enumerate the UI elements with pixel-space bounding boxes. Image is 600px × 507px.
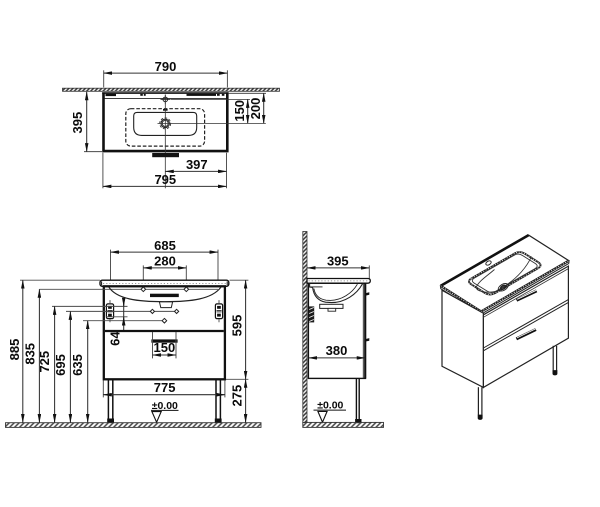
svg-text:885: 885 [7, 339, 22, 361]
svg-text:695: 695 [53, 354, 68, 376]
svg-text:775: 775 [154, 380, 176, 395]
svg-text:725: 725 [37, 351, 52, 373]
svg-text:150: 150 [154, 340, 176, 355]
svg-text:380: 380 [326, 343, 348, 358]
svg-text:395: 395 [327, 253, 349, 268]
svg-text:395: 395 [70, 112, 85, 134]
svg-text:595: 595 [229, 315, 244, 337]
svg-text:397: 397 [186, 157, 208, 172]
svg-text:835: 835 [22, 343, 37, 365]
svg-text:795: 795 [154, 172, 176, 187]
svg-text:280: 280 [154, 253, 176, 268]
svg-text:64: 64 [107, 331, 122, 346]
svg-text:200: 200 [248, 98, 263, 120]
svg-text:790: 790 [155, 59, 177, 74]
svg-text:150: 150 [232, 100, 247, 122]
svg-text:635: 635 [70, 354, 85, 376]
svg-text:685: 685 [154, 238, 176, 253]
svg-text:275: 275 [229, 385, 244, 407]
